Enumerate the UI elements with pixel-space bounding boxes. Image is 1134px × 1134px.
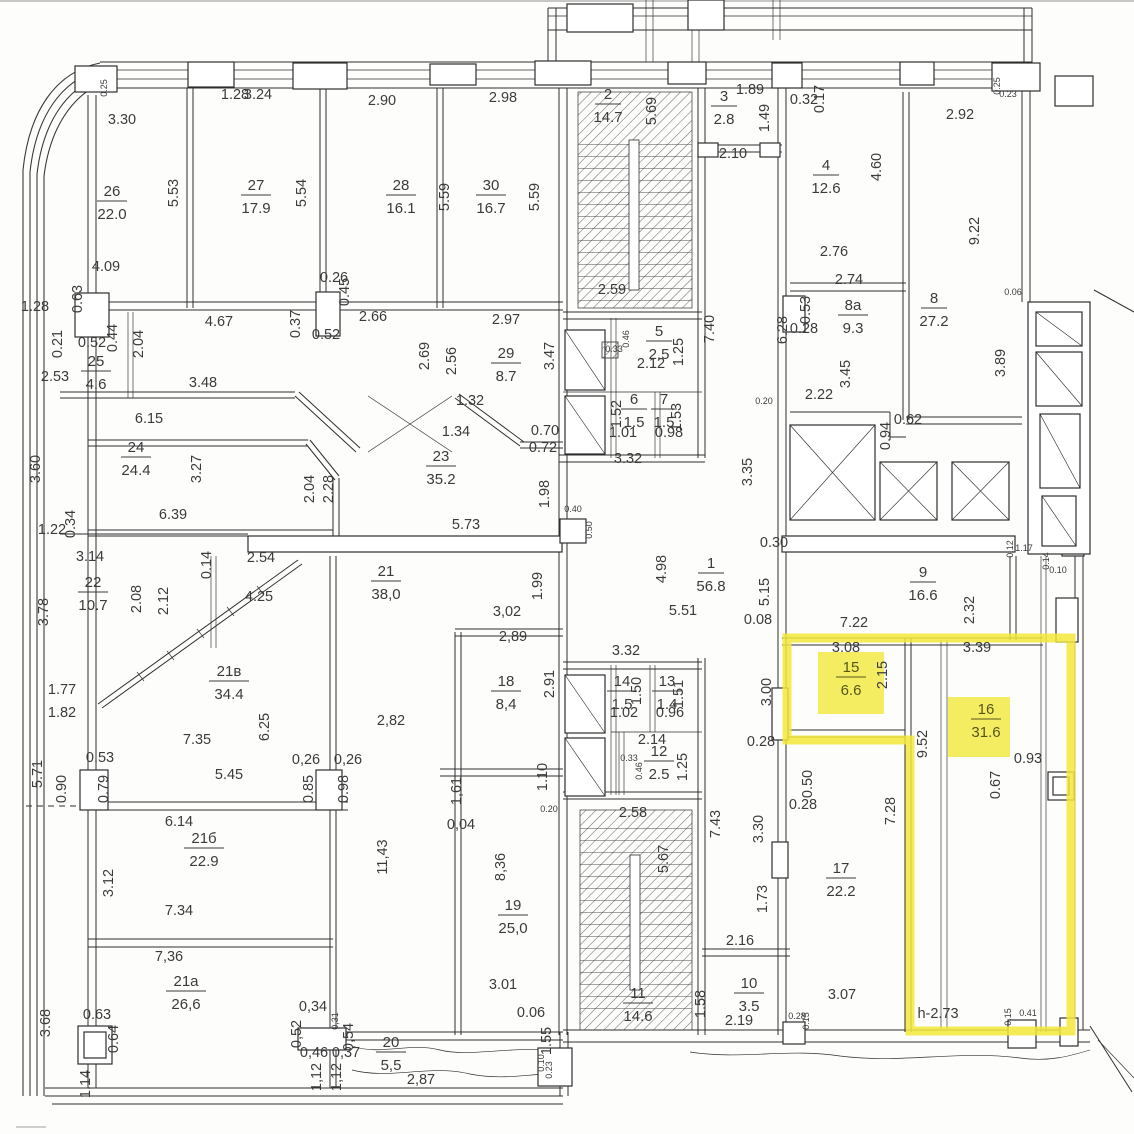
dimension-label: 0,46: [300, 1045, 328, 1061]
dimension-label: 0.08: [744, 612, 772, 628]
room-number-label: 2: [604, 86, 612, 103]
room-number-label: 4: [822, 157, 830, 174]
dimension-label: 1.22: [38, 522, 66, 538]
dimension-label: 0.50: [800, 770, 816, 798]
dimension-label: 0.34: [63, 510, 79, 538]
room-number-label: 21а: [173, 973, 199, 990]
pier: [567, 4, 633, 32]
dimension-label: 1.10: [535, 763, 551, 791]
dimension-label: 7.28: [883, 797, 899, 825]
room-area-label: 31.6: [971, 724, 1000, 741]
dimension-label: 2.98: [489, 90, 517, 106]
dimension-label: 8,36: [493, 853, 509, 881]
room-area-label: 16.6: [908, 587, 937, 604]
dimension-label: 2.53: [41, 369, 69, 385]
dimension-label: 3.89: [993, 349, 1009, 377]
room-area-label: 1.4: [657, 696, 678, 713]
dimension-label: 0.14: [199, 551, 215, 579]
pier: [188, 62, 234, 87]
dimension-label: 1.25: [675, 753, 691, 781]
dimension-label: 2.66: [359, 309, 387, 325]
room-area-label: 14.6: [623, 1008, 652, 1025]
dimension-label: 1.32: [456, 393, 484, 409]
dimension-label: 0.41: [1019, 1008, 1037, 1018]
dimension-label: 1.34: [442, 424, 470, 440]
dimension-label: 2.59: [598, 282, 626, 298]
room-area-label: 34.4: [214, 686, 243, 703]
dimension-label: 2,89: [499, 629, 527, 645]
dimension-label: 2.12: [156, 587, 172, 615]
room-area-label: 2.5: [649, 346, 670, 363]
dimension-label: 0,04: [447, 817, 475, 833]
dimension-label: 0.20: [755, 396, 773, 406]
dimension-label: 2.22: [805, 387, 833, 403]
dimension-label: 0.33: [605, 344, 623, 354]
dimension-label: 1,12: [309, 1063, 325, 1091]
dimension-label: 0.28: [790, 321, 818, 337]
dimension-label: 3.35: [740, 458, 756, 486]
dimension-label: 5.45: [215, 767, 243, 783]
room-number-label: 1: [707, 555, 715, 572]
dimension-label: 5.59: [437, 183, 453, 211]
dimension-label: 1.82: [48, 705, 76, 721]
room-number-label: 29: [498, 345, 515, 362]
corridor-wall-band: [248, 536, 562, 552]
room-number-label: 21б: [191, 830, 216, 847]
room-number-label: 6: [630, 391, 638, 408]
dimension-label: 0.53: [798, 296, 814, 324]
dimension-label: 2.91: [542, 670, 558, 698]
dimension-label: 0.63: [83, 1007, 111, 1023]
room-number-label: 25: [88, 353, 105, 370]
dimension-label: 3.48: [189, 375, 217, 391]
pier: [293, 63, 347, 89]
dimension-label: 2.08: [129, 585, 145, 613]
dimension-label: 0.63: [70, 285, 86, 313]
dimension-label: 3.27: [189, 455, 205, 483]
dimension-label: 11,43: [375, 839, 391, 874]
room-number-label: 26: [104, 183, 121, 200]
dimension-label: 7.40: [702, 315, 718, 343]
dimension-label: 5.53: [166, 179, 182, 207]
room-area-label: 16.7: [476, 200, 505, 217]
window-box: [772, 842, 788, 878]
room-area-label: 5,5: [381, 1057, 402, 1074]
dimension-label: 3.68: [38, 1009, 54, 1037]
dimension-label: 3.12: [101, 869, 117, 897]
dimension-label: 0.90: [54, 775, 70, 803]
dimension-label: 0.62: [894, 412, 922, 428]
room-number-label: 8: [930, 290, 938, 307]
dimension-label: 1.98: [537, 480, 553, 508]
dimension-label: 0.85: [301, 775, 317, 803]
dimension-label: 0.06: [517, 1005, 545, 1021]
dimension-label: 4.25: [245, 589, 273, 605]
room-number-label: 23: [433, 448, 450, 465]
dimension-label: 0,37: [332, 1045, 360, 1061]
dimension-label: 5.54: [294, 179, 310, 207]
room-area-label: 17.9: [241, 200, 270, 217]
door-opening: [698, 143, 718, 157]
room-number-label: 16: [978, 701, 995, 718]
pier: [772, 63, 802, 88]
dimension-label: 2.58: [619, 805, 647, 821]
dimension-label: 2.54: [247, 550, 275, 566]
dimension-label: 5.15: [757, 578, 773, 606]
room-number-label: 10: [741, 975, 758, 992]
dimension-label: 3.60: [28, 455, 44, 483]
dimension-label: 0.25: [99, 79, 109, 97]
pier: [430, 64, 476, 85]
room-area-label: 26,6: [171, 996, 200, 1013]
dimension-label: 2,82: [377, 713, 405, 729]
pier: [535, 61, 591, 85]
dimension-label: 0.12: [1005, 540, 1015, 558]
dimension-label: 2.69: [417, 342, 433, 370]
dimension-label: 2.32: [962, 596, 978, 624]
dimension-label: 0.93: [1014, 751, 1042, 767]
room-area-label: 2.5: [649, 766, 670, 783]
dimension-label: 0.45: [337, 278, 353, 306]
dimension-label: 3.47: [542, 342, 558, 370]
room-number-label: 7: [660, 391, 668, 408]
room-area-label: 8,4: [496, 696, 517, 713]
room-number-label: 27: [248, 177, 265, 194]
dimension-label: 0.50: [584, 521, 594, 539]
room-number-label: 30: [483, 177, 500, 194]
dimension-label: 2.10: [719, 146, 747, 162]
dimension-label: 5.51: [669, 603, 697, 619]
dimension-label: 5.59: [527, 183, 543, 211]
dimension-label: 2.74: [835, 272, 863, 288]
dimension-label: 3.08: [832, 640, 860, 656]
room-number-label: 24: [128, 439, 145, 456]
dimension-label: 6.14: [165, 814, 193, 830]
dimension-label: 4.67: [205, 314, 233, 330]
dimension-label: 3.24: [244, 87, 272, 103]
window-box-inner: [84, 1032, 106, 1058]
dimension-label: 3.14: [76, 549, 104, 565]
floor-plan-scan: Scanned floor plan with rooms 15 and 16 …: [0, 0, 1134, 1134]
room-number-label: 14: [614, 673, 631, 690]
room-number-label: 8а: [845, 297, 862, 314]
corridor-wall-band: [782, 536, 1015, 552]
dimension-label: 6.28: [775, 316, 791, 344]
dimension-label: 1.89: [736, 82, 764, 98]
dimension-label: 1.14: [78, 1070, 94, 1098]
room-area-label: 56.8: [696, 578, 725, 595]
room-area-label: 27.2: [919, 313, 948, 330]
room-area-label: 12.6: [811, 180, 840, 197]
room-number-label: 3: [720, 88, 728, 105]
dimension-label: 3.30: [108, 112, 136, 128]
dimension-label: 2.92: [946, 107, 974, 123]
dimension-label: 0.20: [540, 804, 558, 814]
dimension-label: 0.98: [336, 775, 352, 803]
dimension-label: 0.94: [878, 422, 894, 450]
room-area-label: 16.1: [386, 200, 415, 217]
dimension-label: 7,36: [155, 949, 183, 965]
highlight-overlay: [787, 638, 1071, 1031]
dimension-label: 6.39: [159, 507, 187, 523]
dimension-label: 4.60: [869, 153, 885, 181]
room-number-label: 21в: [217, 663, 242, 680]
dimension-label: 3.78: [36, 598, 52, 626]
dimension-label: 1.73: [755, 885, 771, 913]
dimension-label: 4.09: [92, 259, 120, 275]
room-area-label: 38,0: [371, 586, 400, 603]
pier: [1055, 76, 1093, 106]
room-number-label: 19: [505, 897, 522, 914]
dimension-label: 1,61: [449, 777, 465, 805]
dimension-label: 3.45: [838, 360, 854, 388]
room-number-label: 9: [919, 564, 927, 581]
dimension-label: 9.22: [967, 217, 983, 245]
dimension-label: 6.25: [257, 713, 273, 741]
room-number-label: 11: [630, 985, 646, 1002]
dimension-label: 2.04: [302, 475, 318, 503]
pier: [688, 0, 724, 30]
dimension-label: 2.15: [875, 661, 891, 689]
dimension-label: 1.58: [693, 990, 709, 1018]
pier: [75, 66, 117, 92]
dimension-label: 3.39: [963, 640, 991, 656]
door-opening: [760, 143, 780, 157]
dimension-label: 0.52: [78, 335, 106, 351]
dimension-label: 0,26: [292, 752, 320, 768]
dimension-label: 5.69: [644, 97, 660, 125]
dimension-label: 0.70: [531, 423, 559, 439]
room-area-label: 35.2: [426, 471, 455, 488]
dimension-label: 5.67: [656, 845, 672, 873]
room-area-label: 8.7: [496, 368, 517, 385]
dimension-label: 0.15: [801, 1012, 811, 1030]
dimension-label: 0.52: [312, 327, 340, 343]
scale-note-fragment: [16, 1126, 46, 1128]
dimension-label: 7.35: [183, 732, 211, 748]
dimension-label: 1.28: [21, 299, 49, 315]
dimension-label: 1.77: [48, 682, 76, 698]
horizontal-walls: [60, 145, 1043, 1040]
dimension-label: 7.22: [840, 615, 868, 631]
dimension-label: 0.23: [999, 89, 1017, 99]
dimension-label: 2,87: [407, 1072, 435, 1088]
dimension-label: 0.06: [1004, 287, 1022, 297]
dimension-label: 7.34: [165, 903, 193, 919]
dimension-label: 1.17: [1015, 543, 1033, 553]
dimension-label: 0.28: [789, 797, 817, 813]
pier: [900, 62, 934, 85]
dimension-label: 0.23: [544, 1061, 554, 1079]
room-area-label: 1.5: [654, 414, 675, 431]
stair-stringer: [629, 140, 639, 290]
dimension-label: 0.64: [106, 1025, 122, 1053]
room-area-label: 2.8: [714, 111, 735, 128]
door-swing-cross: [368, 396, 452, 452]
room-number-label: 13: [659, 673, 676, 690]
dimension-label: 6.15: [135, 411, 163, 427]
dimension-label: 0,34: [299, 999, 327, 1015]
dimension-label: 0.67: [988, 771, 1004, 799]
dimension-label: 0,31: [330, 1012, 340, 1030]
pier: [560, 519, 586, 543]
floor-plan-svg: 1.283.300.253.242.902.981.891.490.320.17…: [0, 0, 1134, 1134]
dimension-label: 2.76: [820, 244, 848, 260]
dimension-label: 3.07: [828, 987, 856, 1003]
room-area-label: 1.5: [624, 414, 645, 431]
pier: [668, 62, 706, 84]
room-number-label: 20: [383, 1034, 400, 1051]
dimension-label: 2.16: [726, 933, 754, 949]
dimension-label: 0.30: [760, 535, 788, 551]
dimension-label: 2.28: [321, 475, 337, 503]
room-area-label: 3.5: [739, 998, 760, 1015]
room-area-label: 24.4: [121, 462, 150, 479]
room-area-label: 4.6: [86, 376, 107, 393]
dimension-label: 0,26: [334, 752, 362, 768]
dimension-label: 5.71: [30, 760, 46, 788]
dimension-label: 0.72: [529, 440, 557, 456]
dimension-label: 9.52: [915, 730, 931, 758]
dimension-label: 0.37: [288, 310, 304, 338]
elevator-shafts: [790, 425, 1009, 520]
boundary-tick2: [1098, 1040, 1134, 1078]
room-area-label: 1.5: [612, 696, 633, 713]
dimension-label: 0.44: [105, 324, 121, 352]
dimension-label: 7.43: [708, 810, 724, 838]
stair-stringer: [630, 855, 640, 990]
room-number-label: 28: [393, 177, 410, 194]
dimension-label: 0.33: [620, 753, 638, 763]
dimension-label: 3.00: [759, 678, 775, 706]
dimension-label: 3.32: [614, 451, 642, 467]
dimension-label: 0.21: [50, 330, 66, 358]
dimension-label: 3,02: [493, 604, 521, 620]
dimension-label: 1.55: [539, 1027, 555, 1055]
dimension-label: 2.97: [492, 312, 520, 328]
room-area-label: 25,0: [498, 920, 527, 937]
dimension-label: 1.25: [671, 338, 687, 366]
dimension-label: 4.98: [654, 555, 670, 583]
room-number-label: 15: [843, 659, 860, 676]
dimension-label: 5.73: [452, 517, 480, 533]
dimension-label: 1.99: [530, 572, 546, 600]
room-number-label: 17: [833, 860, 850, 877]
dimension-label: 0.17: [812, 85, 828, 113]
dimension-label: 0,52: [289, 1020, 305, 1048]
dimension-label: 0.53: [86, 750, 114, 766]
dimension-label: 1,12: [329, 1063, 345, 1091]
break-waves: [352, 1046, 1090, 1077]
room-area-label: 22.9: [189, 853, 218, 870]
dimension-label: 0.40: [564, 504, 582, 514]
dimension-label: 0.28: [747, 734, 775, 750]
dimension-label: 3.32: [612, 643, 640, 659]
room-area-label: 9.3: [843, 320, 864, 337]
room-area-label: 6.6: [841, 682, 862, 699]
dimension-label: 0.15: [1003, 1008, 1013, 1026]
bottom-left-wall: [45, 1088, 563, 1104]
dimension-label: 0.10: [1049, 565, 1067, 575]
boundary-ticks: [1090, 290, 1134, 1092]
room-number-label: 22: [85, 574, 102, 591]
room-number-label: 5: [655, 323, 663, 340]
dimension-label: 3.01: [489, 977, 517, 993]
dimension-label: 0.79: [96, 775, 112, 803]
room-number-label: 18: [498, 673, 515, 690]
room-area-label: 22.2: [826, 883, 855, 900]
room-number-label: 12: [651, 743, 668, 760]
dimension-label: 1.49: [757, 104, 773, 132]
room-number-label: 21: [378, 563, 395, 580]
dimension-label: 0.46: [634, 762, 644, 780]
dimension-label: h-2.73: [917, 1006, 958, 1022]
dimension-label: 2.90: [368, 93, 396, 109]
dimension-label: 2.56: [444, 347, 460, 375]
dimension-label: 2.19: [725, 1013, 753, 1029]
dimension-label: 2.04: [131, 330, 147, 358]
room-area-label: 10.7: [78, 597, 107, 614]
room-area-label: 14.7: [593, 109, 622, 126]
dimension-label: 3.30: [751, 815, 767, 843]
room-area-label: 22.0: [97, 206, 126, 223]
